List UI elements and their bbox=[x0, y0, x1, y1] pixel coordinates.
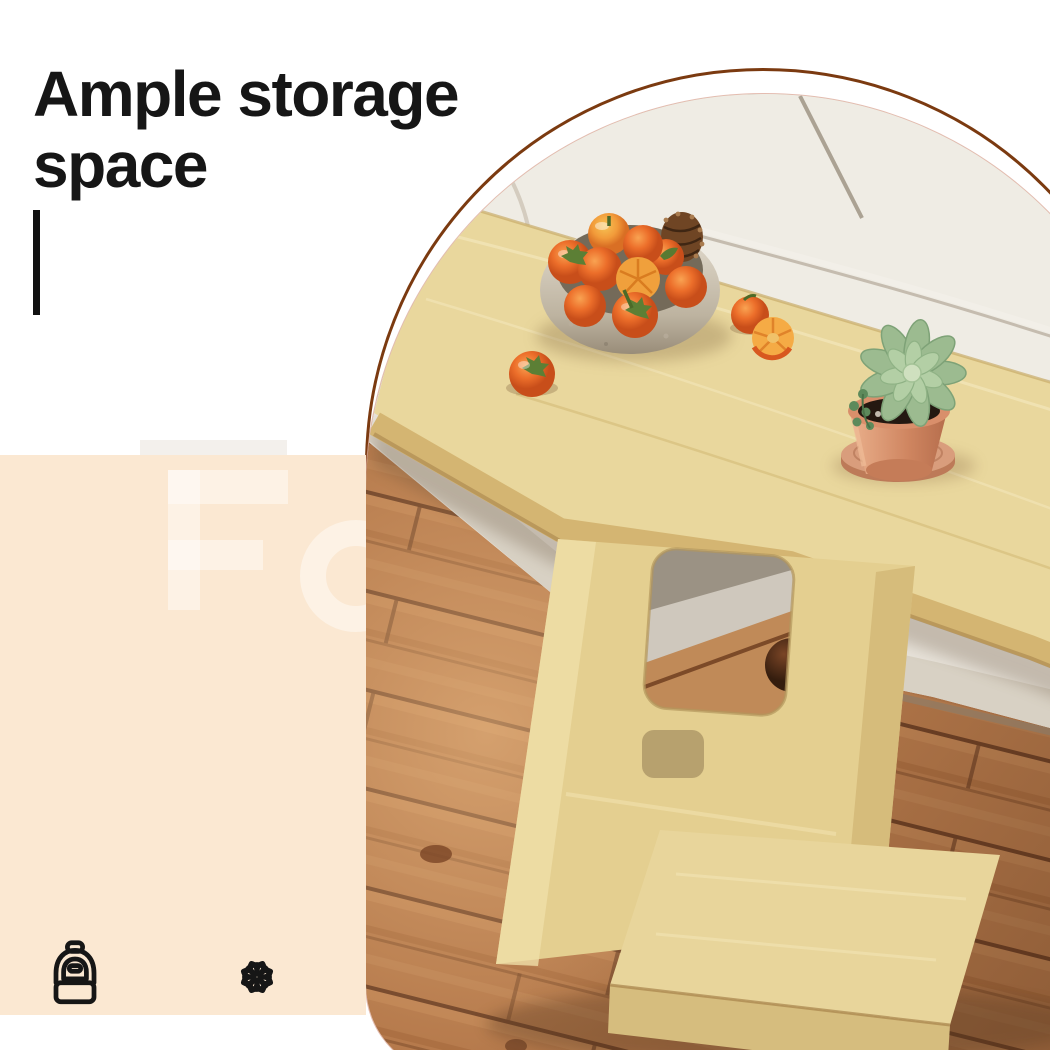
floor-knot bbox=[420, 845, 452, 863]
watermark-shape bbox=[168, 540, 263, 570]
title-line-1: Ample storage bbox=[33, 59, 458, 130]
product-photo bbox=[366, 94, 1050, 1050]
title-line-2: space bbox=[33, 130, 458, 201]
watermark-shape bbox=[168, 470, 288, 504]
feature-bags: Bags bbox=[0, 937, 150, 1015]
features-panel: Bags Omaments Books bbox=[0, 455, 366, 1015]
watermark-shape bbox=[300, 520, 366, 632]
photo-scene bbox=[366, 94, 1050, 1050]
watermark-fragment bbox=[140, 440, 287, 455]
product-promo-image: Ample storage space Bags bbox=[0, 0, 1050, 1050]
title-accent-bar bbox=[33, 210, 40, 315]
pedestal-notch bbox=[642, 730, 704, 778]
backpack-icon bbox=[44, 937, 106, 1015]
flower-icon bbox=[221, 937, 293, 1015]
page-title: Ample storage space bbox=[33, 59, 458, 201]
feature-ornaments: Omaments bbox=[182, 937, 332, 1015]
